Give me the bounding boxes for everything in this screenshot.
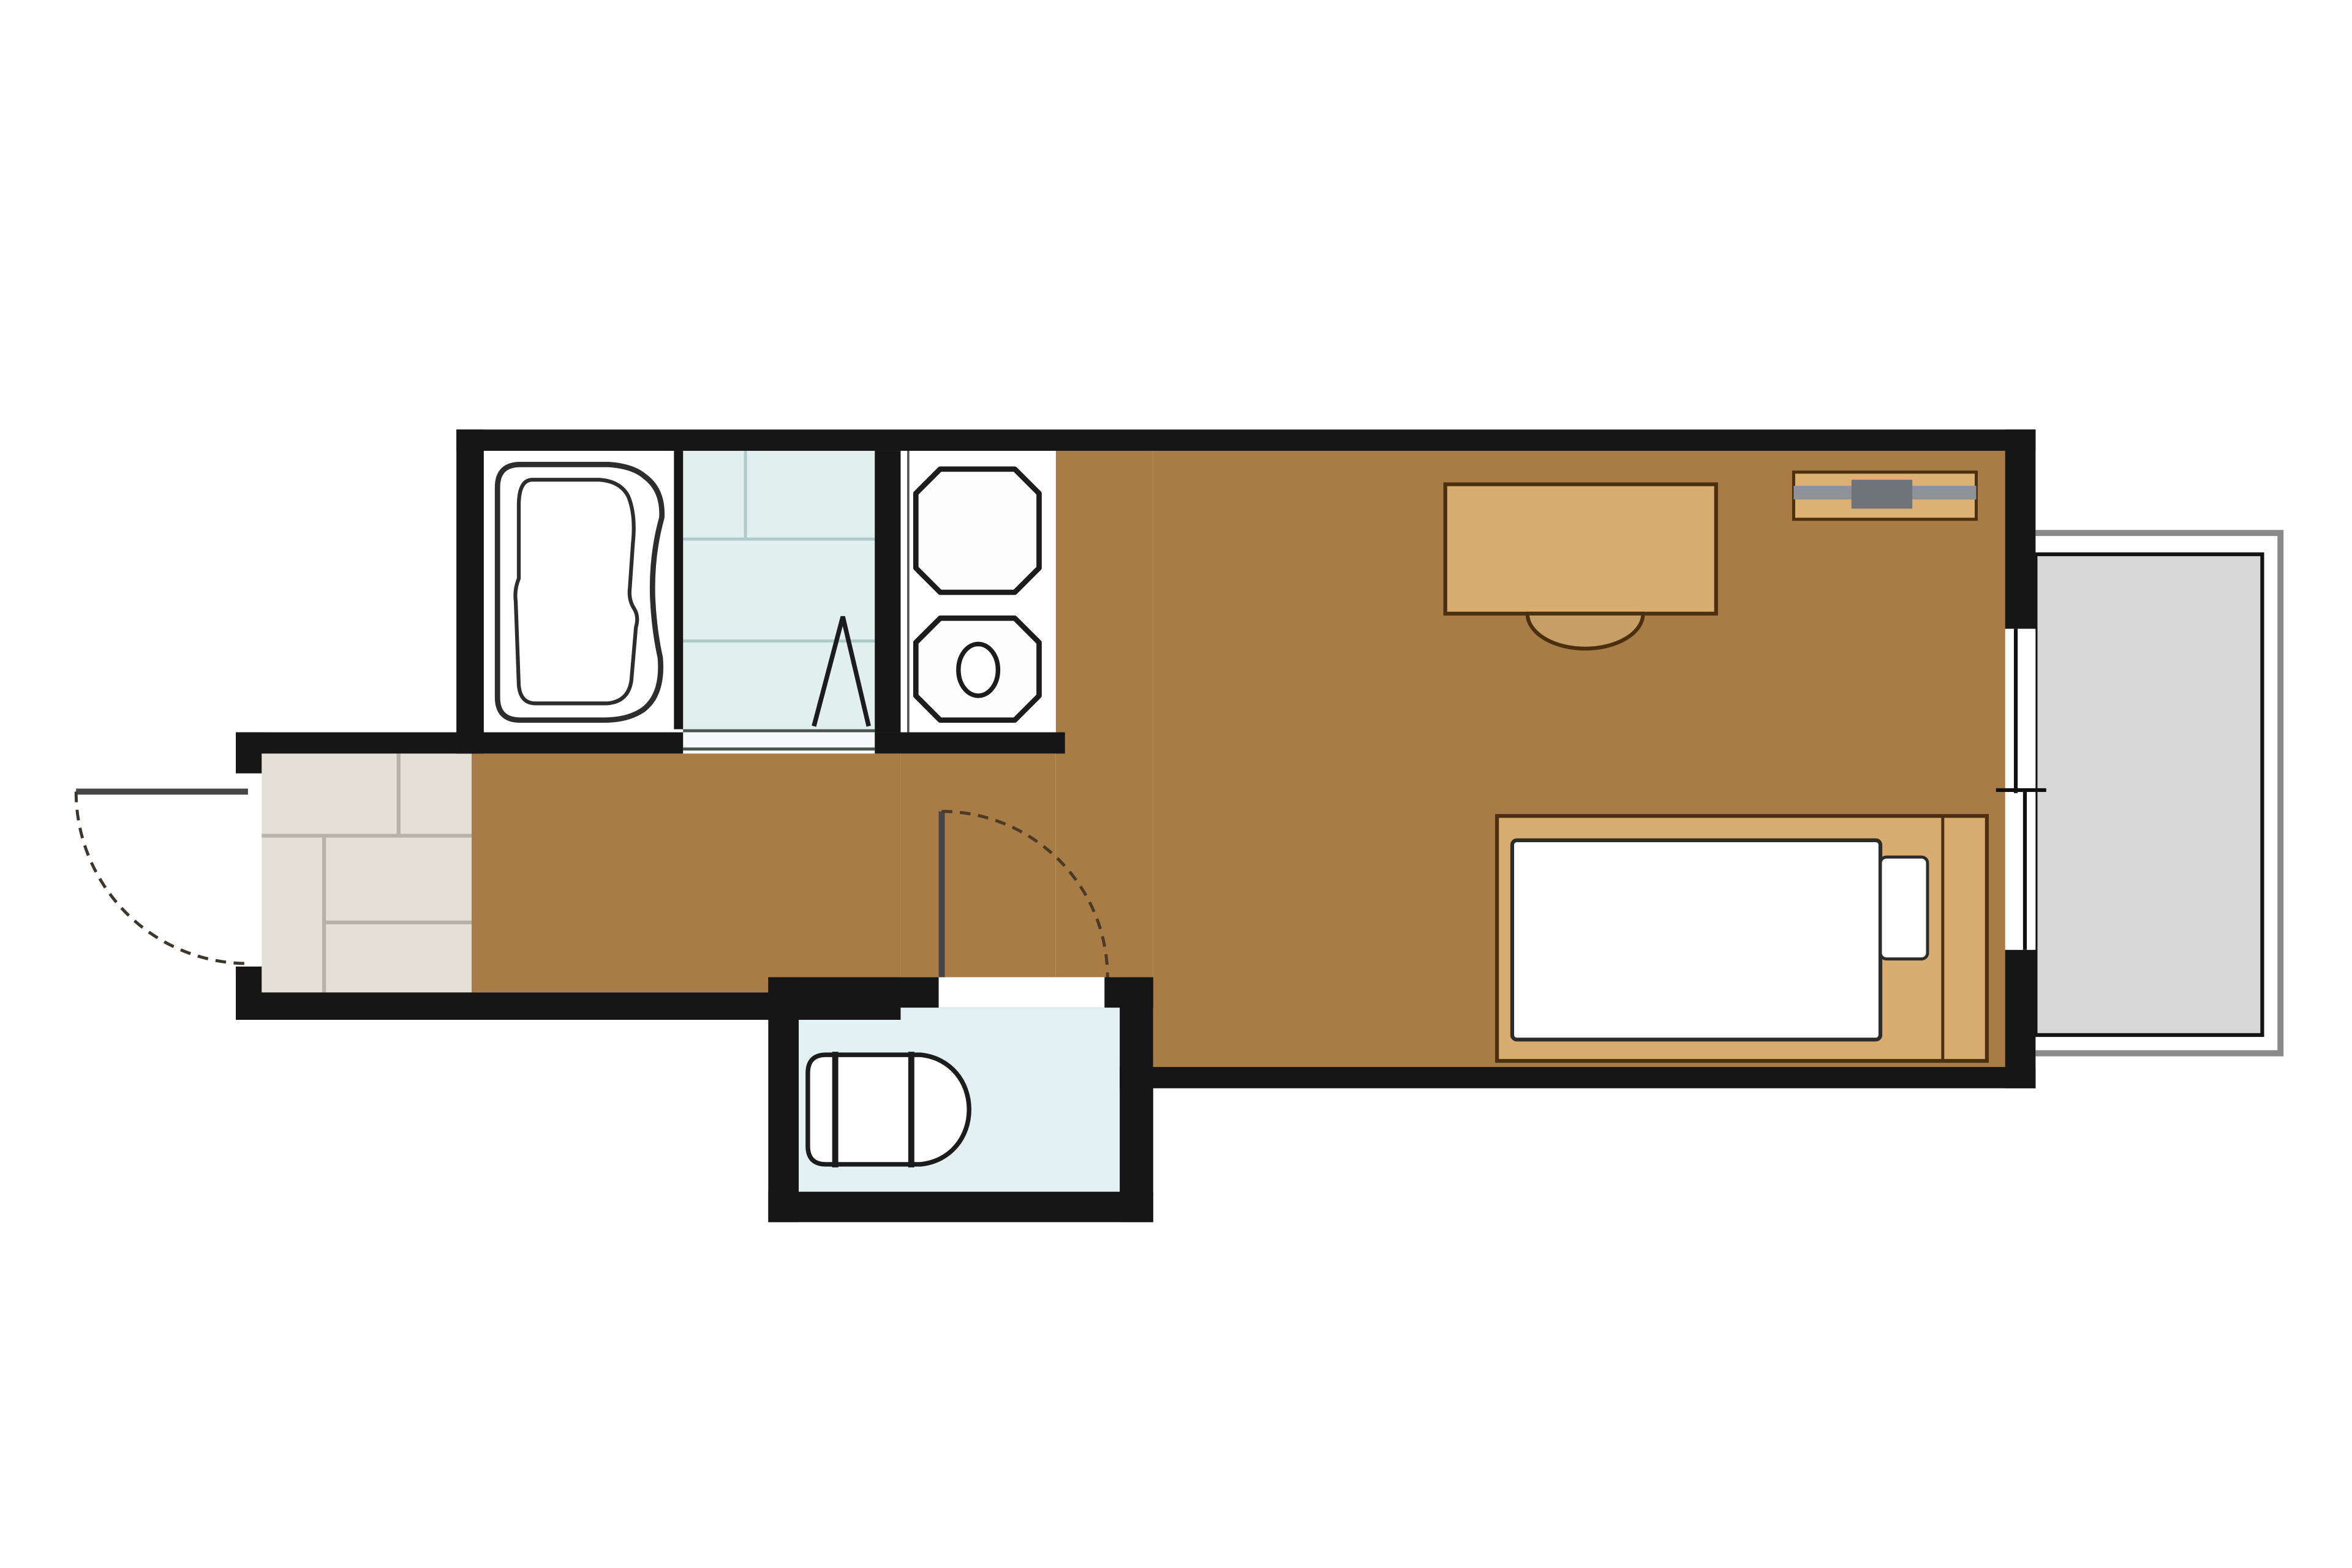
- wall-toilet-left: [768, 977, 799, 1222]
- wall-bath-shower-divider: [674, 451, 683, 729]
- bed-mattress: [1512, 840, 1880, 1039]
- wall-entrance-left-upper: [236, 733, 262, 774]
- shower-room-floor: [683, 451, 875, 729]
- wall-bath-bottom: [456, 733, 683, 754]
- toilet-door-opening: [939, 977, 1105, 1008]
- desk: [1445, 484, 1716, 614]
- wall-entrance-top: [236, 733, 475, 754]
- floor-plan-page: [0, 0, 2352, 1568]
- air-conditioner-center: [1852, 480, 1912, 508]
- stove-burner: [959, 644, 998, 695]
- toilet-tank-rail: [832, 1052, 839, 1167]
- wall-main-bottom: [1120, 1067, 2035, 1088]
- wall-kitchen-bottom: [875, 733, 1065, 754]
- kitchen-sink: [916, 469, 1039, 592]
- front-door-swing-arc: [76, 791, 248, 963]
- wall-toilet-right: [1120, 977, 1153, 1222]
- toilet-body: [808, 1055, 969, 1164]
- kitchen-lower-floor: [900, 753, 1055, 977]
- wall-left: [456, 429, 484, 753]
- main-room-floor-left: [1056, 451, 1153, 977]
- toilet-tank-rail: [908, 1052, 914, 1167]
- wall-toilet-bottom: [768, 1192, 1153, 1223]
- hallway-floor: [472, 753, 900, 992]
- wall-top: [456, 429, 2035, 451]
- wall-right-upper: [2005, 429, 2036, 628]
- bed-pillow: [1880, 857, 1928, 959]
- balcony-floor: [2035, 554, 2262, 1035]
- bathtub-outer: [497, 464, 661, 720]
- wall-shower-right: [875, 451, 900, 733]
- shower-threshold: [683, 729, 875, 751]
- floor-plan-svg: [0, 0, 2352, 1568]
- entrance-tile-floor: [262, 753, 472, 992]
